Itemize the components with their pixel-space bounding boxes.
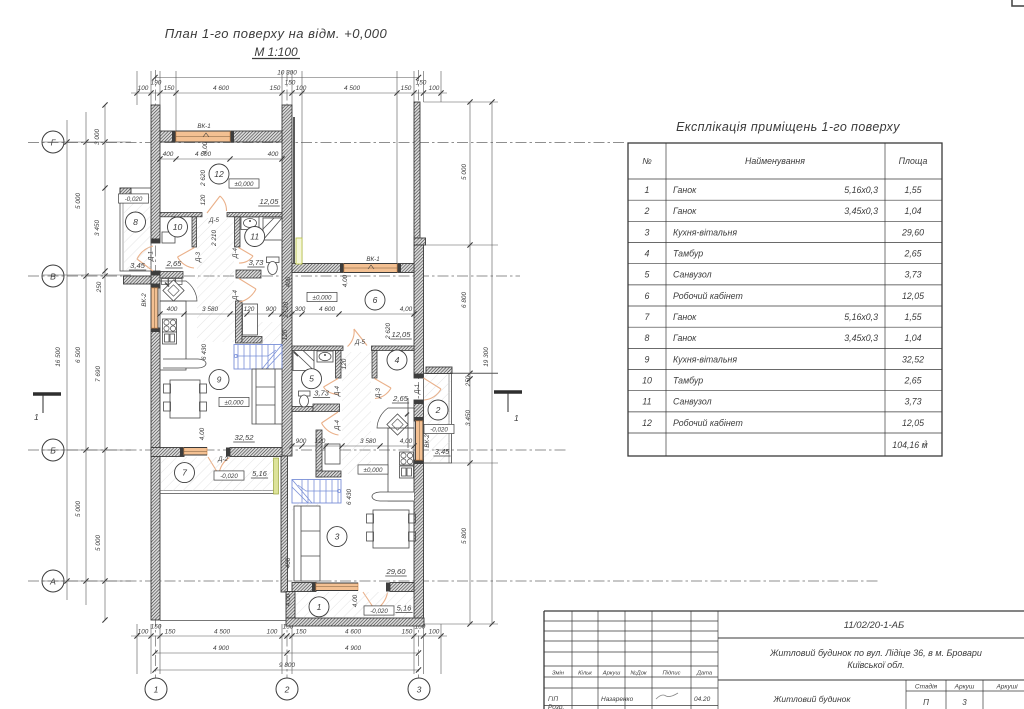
svg-text:±0,000: ±0,000 <box>364 467 383 474</box>
svg-text:3 450: 3 450 <box>94 220 101 236</box>
svg-text:150: 150 <box>165 629 176 636</box>
svg-text:1: 1 <box>34 412 39 422</box>
svg-text:Б: Б <box>50 445 56 455</box>
svg-text:150: 150 <box>296 629 307 636</box>
svg-text:5,16х0,3: 5,16х0,3 <box>844 185 878 195</box>
svg-text:400: 400 <box>285 276 292 287</box>
svg-text:6: 6 <box>373 295 378 305</box>
svg-text:16 500: 16 500 <box>55 347 62 367</box>
svg-text:3,45: 3,45 <box>130 261 146 270</box>
svg-text:Стадія: Стадія <box>915 683 938 691</box>
svg-text:100: 100 <box>267 629 278 636</box>
svg-text:Д-1: Д-1 <box>148 251 155 262</box>
svg-text:250: 250 <box>96 281 103 293</box>
svg-text:2 620: 2 620 <box>385 323 392 340</box>
svg-text:9: 9 <box>645 354 650 364</box>
svg-text:8: 8 <box>645 333 650 343</box>
svg-text:5 000: 5 000 <box>75 501 82 517</box>
svg-text:5 000: 5 000 <box>75 193 82 209</box>
svg-text:150: 150 <box>401 85 412 92</box>
svg-text:9 800: 9 800 <box>279 662 295 669</box>
svg-text:Д-1: Д-1 <box>414 384 421 395</box>
svg-text:4 600: 4 600 <box>345 629 361 636</box>
svg-text:ВК-2: ВК-2 <box>424 434 431 448</box>
svg-text:П: П <box>923 698 929 707</box>
svg-text:4 600: 4 600 <box>213 85 229 92</box>
svg-text:±0,000: ±0,000 <box>225 400 244 407</box>
svg-text:Кільк: Кільк <box>578 671 592 677</box>
svg-text:ВК-1: ВК-1 <box>366 256 379 263</box>
svg-text:11: 11 <box>642 397 651 407</box>
svg-text:Д-2: Д-2 <box>217 456 228 463</box>
svg-text:2: 2 <box>923 441 927 447</box>
svg-text:2,65: 2,65 <box>903 249 921 259</box>
svg-text:3: 3 <box>962 698 967 707</box>
svg-text:-0,020: -0,020 <box>430 427 448 434</box>
svg-text:4 900: 4 900 <box>345 645 361 652</box>
svg-text:2,65: 2,65 <box>392 394 409 403</box>
svg-text:100: 100 <box>138 629 149 636</box>
svg-text:1: 1 <box>645 185 650 195</box>
svg-text:4,00: 4,00 <box>400 306 413 313</box>
svg-text:Розр.: Розр. <box>548 704 564 709</box>
svg-text:2,65: 2,65 <box>903 376 921 386</box>
svg-text:12,05: 12,05 <box>391 330 411 339</box>
svg-text:1: 1 <box>154 684 159 694</box>
svg-text:1,04: 1,04 <box>904 333 921 343</box>
svg-text:400: 400 <box>285 557 292 568</box>
svg-text:2: 2 <box>284 684 290 694</box>
svg-text:29,60: 29,60 <box>901 227 924 237</box>
svg-text:4: 4 <box>395 355 400 365</box>
svg-text:Площа: Площа <box>899 156 928 166</box>
svg-text:4,00: 4,00 <box>285 593 292 606</box>
svg-text:Експлікація приміщень 1-го пов: Експлікація приміщень 1-го поверху <box>676 120 900 134</box>
svg-text:-0,020: -0,020 <box>370 608 388 615</box>
svg-text:12: 12 <box>214 169 224 179</box>
svg-text:Житловий будинок по вул. Лідіц: Житловий будинок по вул. Лідіце 36, в м.… <box>769 648 982 658</box>
svg-text:5,16х0,3: 5,16х0,3 <box>844 312 878 322</box>
svg-text:ВК-2: ВК-2 <box>141 293 148 307</box>
svg-text:№Док: №Док <box>630 671 647 677</box>
svg-text:4: 4 <box>645 249 650 259</box>
svg-text:Робочий кабінет: Робочий кабінет <box>673 418 743 428</box>
svg-text:6 500: 6 500 <box>75 347 82 363</box>
svg-text:ГІП: ГІП <box>548 696 558 703</box>
svg-text:5 000: 5 000 <box>95 535 102 551</box>
svg-text:Д-5: Д-5 <box>354 339 365 346</box>
svg-text:100: 100 <box>296 85 307 92</box>
svg-text:3,73: 3,73 <box>314 389 330 398</box>
svg-text:6: 6 <box>645 291 650 301</box>
svg-text:1: 1 <box>317 602 322 612</box>
svg-text:В: В <box>50 271 56 281</box>
svg-text:3: 3 <box>335 532 340 542</box>
svg-text:Д-4: Д-4 <box>334 420 341 431</box>
svg-text:3,73: 3,73 <box>904 397 921 407</box>
svg-text:Санвузол: Санвузол <box>673 270 712 280</box>
svg-text:3,73: 3,73 <box>249 258 265 267</box>
svg-text:3 450: 3 450 <box>465 410 472 426</box>
svg-text:Д-4: Д-4 <box>232 248 239 259</box>
svg-text:2: 2 <box>644 206 650 216</box>
svg-text:10 300: 10 300 <box>277 70 297 77</box>
svg-text:Робочий кабінет: Робочий кабінет <box>673 291 743 301</box>
svg-text:Тамбур: Тамбур <box>673 249 703 259</box>
svg-text:10: 10 <box>642 376 652 386</box>
svg-text:6 430: 6 430 <box>201 344 208 360</box>
svg-text:Змін: Змін <box>552 671 565 677</box>
svg-text:1,55: 1,55 <box>904 185 921 195</box>
svg-text:150: 150 <box>270 85 281 92</box>
svg-text:150: 150 <box>164 85 175 92</box>
svg-text:-0,020: -0,020 <box>125 196 143 203</box>
svg-text:Назаренко: Назаренко <box>601 696 634 703</box>
svg-text:План 1-го поверху на відм. +0,: План 1-го поверху на відм. +0,000 <box>165 26 388 41</box>
svg-text:4,00: 4,00 <box>199 427 206 440</box>
svg-text:2 620: 2 620 <box>283 302 290 319</box>
svg-text:7 690: 7 690 <box>95 366 102 382</box>
svg-text:4,00: 4,00 <box>342 274 349 287</box>
svg-text:Кухня-вітальня: Кухня-вітальня <box>673 354 737 364</box>
svg-text:120: 120 <box>341 358 348 369</box>
svg-text:№: № <box>642 156 652 166</box>
svg-text:Д-3: Д-3 <box>195 252 202 263</box>
svg-text:400: 400 <box>167 306 178 313</box>
svg-text:4,00: 4,00 <box>352 594 359 607</box>
svg-text:100: 100 <box>138 85 149 92</box>
svg-text:1,04: 1,04 <box>904 206 921 216</box>
svg-text:9: 9 <box>217 375 222 385</box>
svg-text:29,60: 29,60 <box>385 567 406 576</box>
svg-text:120: 120 <box>315 438 326 445</box>
svg-text:300: 300 <box>295 306 306 313</box>
svg-text:3 580: 3 580 <box>360 438 376 445</box>
svg-text:2,65: 2,65 <box>166 259 183 268</box>
svg-text:Д-4: Д-4 <box>334 386 341 397</box>
svg-text:400: 400 <box>163 151 174 158</box>
svg-text:Ганок: Ганок <box>673 333 697 343</box>
svg-text:2: 2 <box>435 405 441 415</box>
svg-text:Аркуш: Аркуш <box>602 671 621 677</box>
svg-text:19 300: 19 300 <box>483 347 490 367</box>
svg-text:5: 5 <box>645 270 650 280</box>
svg-text:5,16: 5,16 <box>397 604 413 613</box>
svg-text:150: 150 <box>416 80 427 87</box>
svg-text:1,55: 1,55 <box>904 312 921 322</box>
svg-text:120: 120 <box>244 306 255 313</box>
svg-text:120: 120 <box>200 194 207 205</box>
svg-text:Санвузол: Санвузол <box>673 397 712 407</box>
svg-text:3 580: 3 580 <box>202 306 218 313</box>
svg-text:6 800: 6 800 <box>461 292 468 308</box>
svg-text:ВК-1: ВК-1 <box>197 123 210 130</box>
svg-text:Д-3: Д-3 <box>375 388 382 399</box>
svg-text:4 900: 4 900 <box>213 645 229 652</box>
svg-text:4,00: 4,00 <box>202 141 209 154</box>
svg-text:150: 150 <box>402 629 413 636</box>
svg-text:10: 10 <box>173 222 183 232</box>
svg-text:Найменування: Найменування <box>745 156 805 166</box>
svg-text:Ганок: Ганок <box>673 185 697 195</box>
svg-text:32,52: 32,52 <box>234 433 254 442</box>
svg-text:±0,000: ±0,000 <box>235 181 254 188</box>
svg-text:-0,020: -0,020 <box>220 473 238 480</box>
svg-text:04.20: 04.20 <box>694 696 711 703</box>
svg-text:А: А <box>49 576 56 586</box>
svg-text:Д-5: Д-5 <box>208 217 219 224</box>
svg-text:1: 1 <box>514 413 519 423</box>
svg-text:3,45х0,3: 3,45х0,3 <box>844 206 878 216</box>
svg-text:3: 3 <box>417 684 422 694</box>
svg-text:±0,000: ±0,000 <box>313 295 332 302</box>
svg-text:12,05: 12,05 <box>902 418 924 428</box>
svg-text:Київської обл.: Київської обл. <box>847 660 904 670</box>
svg-text:6 430: 6 430 <box>346 489 353 505</box>
svg-text:100: 100 <box>429 85 440 92</box>
svg-text:5: 5 <box>309 374 314 384</box>
svg-text:11/02/20-1-АБ: 11/02/20-1-АБ <box>844 620 904 631</box>
svg-text:12,05: 12,05 <box>902 291 924 301</box>
svg-text:Аркуші: Аркуші <box>995 683 1018 691</box>
svg-text:4,00: 4,00 <box>400 438 413 445</box>
svg-text:Тамбур: Тамбур <box>673 376 703 386</box>
svg-text:8: 8 <box>133 217 138 227</box>
svg-text:4 500: 4 500 <box>214 629 230 636</box>
svg-text:5 800: 5 800 <box>461 528 468 544</box>
svg-text:Житловий будинок: Житловий будинок <box>773 694 852 704</box>
svg-text:4 600: 4 600 <box>319 306 335 313</box>
svg-text:400: 400 <box>268 151 279 158</box>
svg-text:900: 900 <box>266 306 277 313</box>
svg-text:3,73: 3,73 <box>904 270 921 280</box>
svg-text:3,45х0,3: 3,45х0,3 <box>844 333 878 343</box>
svg-text:3 000: 3 000 <box>94 129 101 145</box>
svg-text:3: 3 <box>645 227 650 237</box>
svg-text:Кухня-вітальня: Кухня-вітальня <box>673 227 737 237</box>
svg-text:Підпис: Підпис <box>662 671 680 677</box>
svg-text:3,45: 3,45 <box>435 447 451 456</box>
svg-text:Ганок: Ганок <box>673 206 697 216</box>
svg-text:900: 900 <box>296 438 307 445</box>
svg-text:2 620: 2 620 <box>200 170 207 187</box>
svg-text:150: 150 <box>285 80 296 87</box>
svg-text:Аркуш: Аркуш <box>954 684 975 691</box>
svg-text:104,16 м: 104,16 м <box>892 440 927 450</box>
svg-text:12: 12 <box>642 418 652 428</box>
svg-text:120: 120 <box>282 329 289 340</box>
svg-text:4 500: 4 500 <box>344 85 360 92</box>
svg-text:Д-4: Д-4 <box>232 290 239 301</box>
svg-text:250: 250 <box>465 375 472 387</box>
svg-text:2 210: 2 210 <box>211 230 218 247</box>
svg-text:Дата: Дата <box>696 671 713 677</box>
svg-text:5 000: 5 000 <box>461 164 468 180</box>
svg-text:Ганок: Ганок <box>673 312 697 322</box>
svg-text:11: 11 <box>250 232 259 242</box>
svg-text:32,52: 32,52 <box>902 354 924 364</box>
svg-text:12,05: 12,05 <box>259 197 279 206</box>
svg-text:М 1:100: М 1:100 <box>254 45 298 59</box>
svg-text:5,16: 5,16 <box>252 469 268 478</box>
svg-text:100: 100 <box>429 629 440 636</box>
